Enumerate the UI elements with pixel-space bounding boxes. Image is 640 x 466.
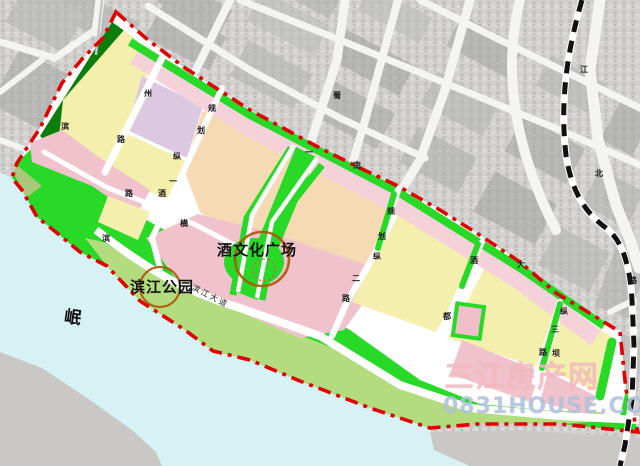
road-name-label: 大 — [517, 261, 525, 269]
road-name-label: 划 — [378, 233, 386, 241]
road-name-label: 州 — [144, 90, 152, 98]
road-name-label: 纵 — [373, 253, 381, 261]
road-name-label: 滨 — [102, 235, 110, 243]
road-name-label: 酒 — [158, 190, 166, 198]
road-name-label: 酒 — [470, 257, 478, 265]
road-name-label: 纵 — [173, 153, 181, 161]
road-name-label: 规 — [208, 105, 216, 113]
road-name-label: 北 — [595, 170, 603, 178]
road-name-label: 都 — [443, 313, 451, 321]
road-name-label: 坝 — [552, 350, 560, 358]
road-name-label: 纵 — [560, 308, 568, 316]
road-name-label: 南 — [353, 162, 361, 170]
map-canvas — [0, 0, 640, 466]
road-name-label: 路 — [629, 277, 637, 285]
river-name-label: 岷 — [63, 309, 82, 328]
road-name-label: 路 — [117, 136, 125, 144]
road-name-label: 划 — [197, 127, 205, 135]
road-name-label: 路 — [539, 349, 547, 357]
plaza-label: 酒文化广场 — [217, 243, 297, 258]
park-label: 滨江公园 — [130, 280, 194, 295]
road-name-label: 二 — [352, 275, 360, 283]
road-name-label: 三 — [551, 326, 559, 334]
road-name-label: 一 — [169, 178, 177, 186]
road-name-label: 横 — [180, 220, 188, 228]
road-name-label: 江 — [580, 66, 588, 74]
road-name-label: 一 — [305, 149, 313, 157]
green-outlined-block — [453, 303, 484, 338]
road-name-label: 路 — [125, 190, 133, 198]
road-name-label: 蜀 — [333, 92, 341, 100]
planning-map: 酒文化广场 滨江公园 岷 滨江大道 滨州路规划纵一路酒横滨蜀一南规划纵二路大酒都… — [0, 0, 640, 466]
road-name-label: 路 — [342, 295, 350, 303]
road-name-label: 滨 — [61, 123, 69, 131]
road-name-label: 规 — [387, 208, 395, 216]
